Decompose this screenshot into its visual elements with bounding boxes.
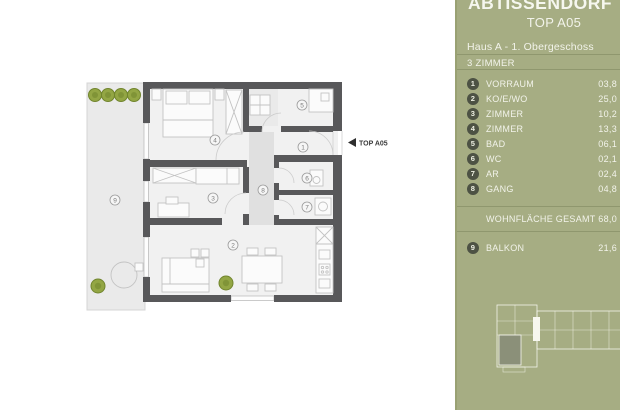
room-area: 10,2 — [598, 109, 617, 119]
divider — [457, 69, 620, 70]
entry-marker-label: TOP A05 — [359, 141, 388, 148]
room-number-badge: 5 — [467, 138, 479, 150]
total-label: WOHNFLÄCHE GESAMT — [486, 214, 598, 224]
room-number-badge: 9 — [467, 242, 479, 254]
svg-text:1: 1 — [301, 144, 305, 151]
room-row: 3 ZIMMER 10,2 — [457, 106, 620, 121]
gang-floor-shading — [249, 132, 274, 225]
svg-text:9: 9 — [113, 197, 117, 204]
room-label: ZIMMER — [486, 124, 598, 134]
room-area: 04,8 — [598, 184, 617, 194]
room-row: 1 VORRAUM 03,8 — [457, 76, 620, 91]
building-floor-heading: Haus A - 1. Obergeschoss — [467, 41, 594, 53]
room-area: 25,0 — [598, 94, 617, 104]
room-label: ZIMMER — [486, 109, 598, 119]
room-row: 8 GANG 04,8 — [457, 181, 620, 196]
room-area: 06,1 — [598, 139, 617, 149]
room-label: BAD — [486, 139, 598, 149]
room-label: BALKON — [486, 243, 598, 253]
apartment-type-heading: 3 ZIMMER — [467, 58, 515, 69]
room-row: 7 AR 02,4 — [457, 166, 620, 181]
svg-text:3: 3 — [211, 195, 215, 202]
room-area: 03,8 — [598, 79, 617, 89]
dining-table — [242, 256, 282, 283]
room-row: 6 WC 02,1 — [457, 151, 620, 166]
room-area: 02,4 — [598, 169, 617, 179]
room-number-badge: 4 — [467, 123, 479, 135]
ar-washer — [315, 198, 331, 215]
desk-room3 — [158, 203, 189, 217]
room-label: WC — [486, 154, 598, 164]
total-area: 68,0 — [598, 214, 617, 224]
room-number-badge: 2 — [467, 93, 479, 105]
room-number-badge: 8 — [467, 183, 479, 195]
room-list: 1 VORRAUM 03,8 2 KO/E/WO 25,0 3 ZIMMER 1… — [457, 76, 620, 196]
room-area: 13,3 — [598, 124, 617, 134]
svg-text:4: 4 — [213, 137, 217, 144]
keyplan-overview — [489, 297, 620, 375]
svg-text:5: 5 — [300, 102, 304, 109]
room-row: 5 BAD 06,1 — [457, 136, 620, 151]
bed-room3 — [196, 168, 239, 184]
room-number-badge: 3 — [467, 108, 479, 120]
floorplan-svg: TOP A05 123456789 — [0, 0, 455, 410]
svg-text:8: 8 — [261, 187, 265, 194]
svg-text:7: 7 — [305, 204, 309, 211]
entry-marker: TOP A05 — [348, 138, 388, 148]
room-row: 2 KO/E/WO 25,0 — [457, 91, 620, 106]
unit-title: TOP A05 — [455, 15, 620, 30]
svg-text:6: 6 — [305, 175, 309, 182]
ar-furniture — [315, 198, 331, 215]
room-label: KO/E/WO — [486, 94, 598, 104]
keyplan-stairs — [533, 317, 540, 341]
divider — [457, 54, 620, 55]
project-title: ABTISSENDORF — [455, 0, 620, 14]
room-label: AR — [486, 169, 598, 179]
keyplan-highlighted-unit — [499, 335, 521, 365]
bedroom4-furniture — [152, 89, 242, 137]
room-row: 4 ZIMMER 13,3 — [457, 121, 620, 136]
room-area: 21,6 — [598, 243, 617, 253]
room-label: VORRAUM — [486, 79, 598, 89]
sidebar: ABTISSENDORF TOP A05 Haus A - 1. Oberges… — [455, 0, 620, 410]
room-label: GANG — [486, 184, 598, 194]
svg-text:2: 2 — [231, 242, 235, 249]
divider — [457, 231, 620, 232]
balkon-row: 9 BALKON 21,6 — [457, 240, 620, 255]
room-area: 02,1 — [598, 154, 617, 164]
room-number-badge: 6 — [467, 153, 479, 165]
room-number-badge: 7 — [467, 168, 479, 180]
total-row: WOHNFLÄCHE GESAMT 68,0 — [457, 207, 620, 231]
room-number-badge: 1 — [467, 78, 479, 90]
entry-arrow-icon — [348, 138, 356, 147]
